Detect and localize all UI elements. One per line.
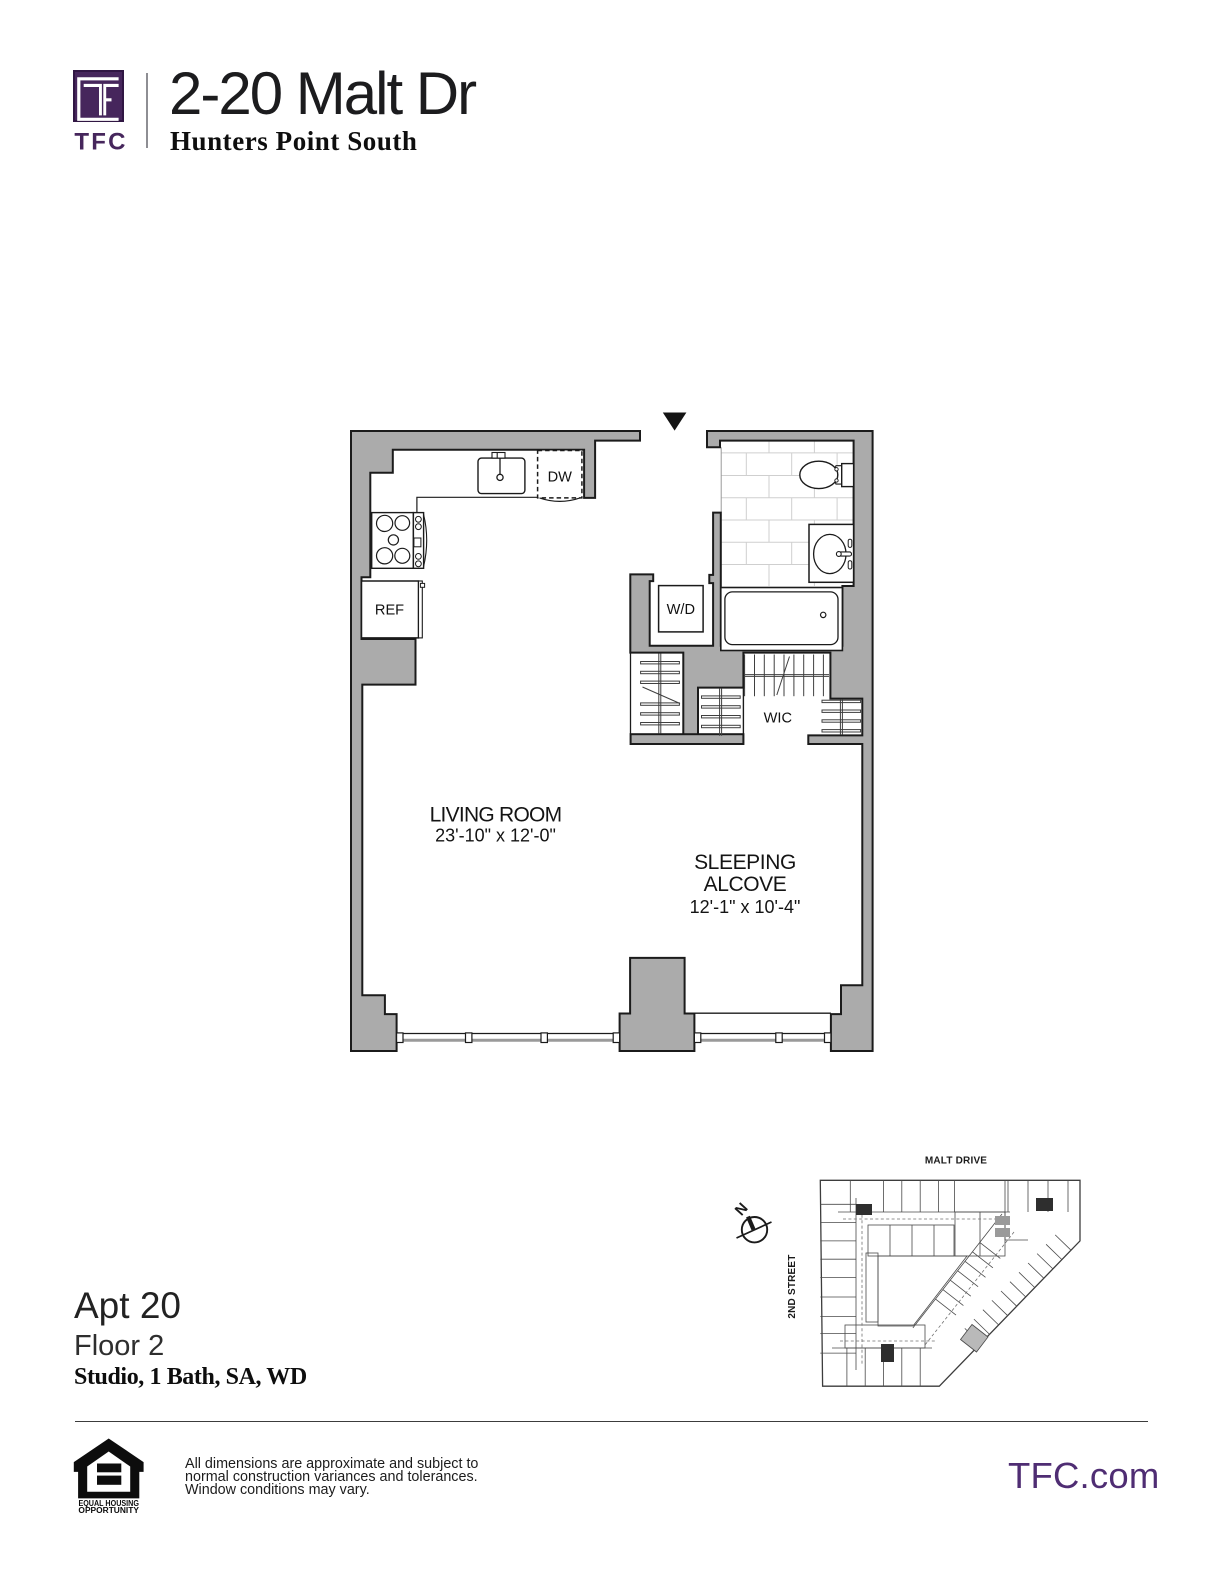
svg-text:N: N: [732, 1200, 752, 1219]
svg-text:12'-1" x 10'-4": 12'-1" x 10'-4": [690, 897, 801, 917]
svg-text:23'-10" x 12'-0": 23'-10" x 12'-0": [435, 826, 556, 846]
svg-text:ALCOVE: ALCOVE: [704, 873, 787, 896]
svg-text:OPPORTUNITY: OPPORTUNITY: [78, 1506, 139, 1515]
svg-text:DW: DW: [548, 470, 573, 486]
svg-text:TFC: TFC: [74, 129, 127, 156]
svg-text:SLEEPING: SLEEPING: [694, 851, 796, 874]
svg-text:W/D: W/D: [667, 602, 695, 618]
svg-text:MALT DRIVE: MALT DRIVE: [925, 1156, 987, 1167]
svg-text:LIVING ROOM: LIVING ROOM: [430, 804, 562, 827]
svg-text:WIC: WIC: [764, 711, 792, 727]
svg-text:2ND STREET: 2ND STREET: [787, 1254, 798, 1318]
svg-text:REF: REF: [375, 603, 404, 619]
